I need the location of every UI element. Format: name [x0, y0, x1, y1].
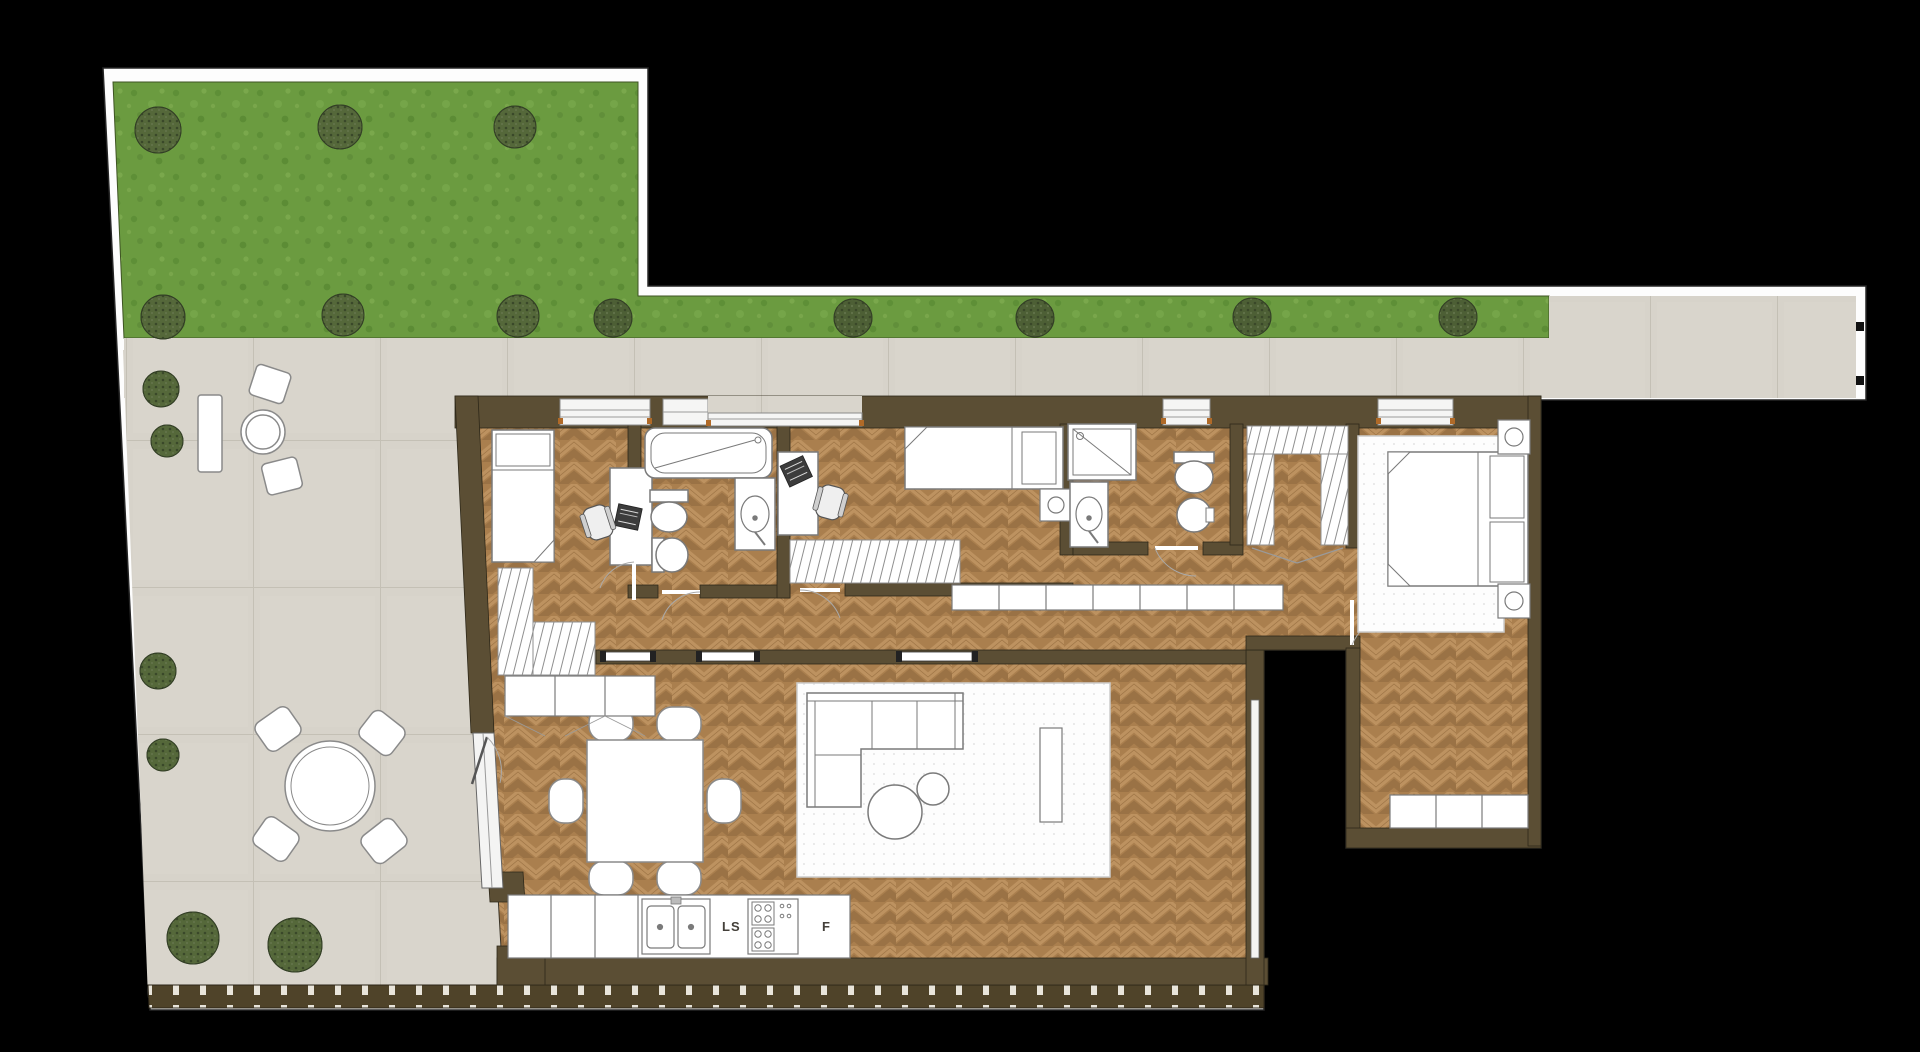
bush-icon: [318, 105, 362, 149]
floor-plan-svg: LS F: [0, 0, 1920, 1052]
sliding-door-icon: [896, 651, 978, 662]
console-table: [1040, 728, 1062, 822]
nightstand: [1498, 584, 1530, 618]
window-master-bedroom: [1376, 399, 1455, 425]
dining-chair: [657, 707, 701, 741]
bush-icon: [167, 912, 219, 964]
hob-icon: [748, 899, 798, 954]
bush-icon: [594, 299, 632, 337]
fridge-label: F: [822, 919, 831, 934]
nightstand: [1498, 420, 1530, 454]
double-bed: [1388, 452, 1528, 586]
connector-wall: [1246, 636, 1360, 650]
east-wall: [1528, 396, 1541, 846]
dining-chair: [589, 861, 633, 895]
east-glazing: [1251, 700, 1259, 958]
sink-icon: [735, 478, 775, 550]
outdoor-round-table: [285, 741, 375, 831]
south-wall: [497, 958, 1268, 985]
window-bedroom1: [558, 399, 652, 425]
sliding-door-icon: [600, 651, 656, 662]
bush-icon: [135, 107, 181, 153]
single-bed-2: [905, 427, 1063, 489]
bush-icon: [151, 425, 183, 457]
kitchen-sink-icon: [642, 897, 710, 954]
bush-icon: [494, 106, 536, 148]
sliding-door-icon: [696, 651, 760, 662]
dining-chair: [549, 779, 583, 823]
dining-chair: [657, 861, 701, 895]
bush-icon: [1439, 298, 1477, 336]
master-south-wall: [1346, 828, 1541, 848]
bush-icon: [268, 918, 322, 972]
shower-icon: [1068, 424, 1136, 480]
master-dresser: [1390, 795, 1528, 828]
toilet-icon: [1174, 452, 1214, 493]
single-bed-1: [492, 430, 554, 562]
dining-chair: [707, 779, 741, 823]
bush-icon: [497, 295, 539, 337]
nightstand: [1040, 489, 1072, 521]
bush-icon: [147, 739, 179, 771]
corridor-cabinet: [952, 585, 1283, 610]
sink-unit-label: LS: [722, 919, 741, 934]
boundary-fence: [148, 985, 1264, 1008]
window-recessed-strip: [706, 396, 864, 426]
gate-post-icon: [1855, 322, 1864, 331]
master-west-wall: [1346, 648, 1360, 830]
bush-icon: [141, 295, 185, 339]
floor-plan-canvas: LS F: [0, 0, 1920, 1052]
wardrobe-bedroom2: [790, 540, 960, 583]
bush-icon: [143, 371, 179, 407]
outdoor-bench: [198, 395, 222, 472]
gate-post-icon: [1855, 376, 1864, 385]
bush-icon: [140, 653, 176, 689]
laptop-icon: [614, 504, 642, 531]
dining-table: [587, 740, 703, 862]
toilet-icon: [650, 490, 688, 532]
bush-icon: [1016, 299, 1054, 337]
sink-icon: [1070, 482, 1108, 547]
bidet-icon: [652, 538, 688, 572]
bush-icon: [322, 294, 364, 336]
bush-icon: [1233, 298, 1271, 336]
window-bathroom2: [1161, 399, 1212, 425]
closet-west-wall: [1230, 424, 1243, 545]
window-bathroom1: [663, 399, 708, 425]
bathtub-icon: [645, 428, 772, 478]
bath1-south-wall-b: [700, 585, 790, 598]
outdoor-side-table: [241, 410, 285, 454]
bush-icon: [834, 299, 872, 337]
kitchen: LS F: [508, 895, 850, 958]
